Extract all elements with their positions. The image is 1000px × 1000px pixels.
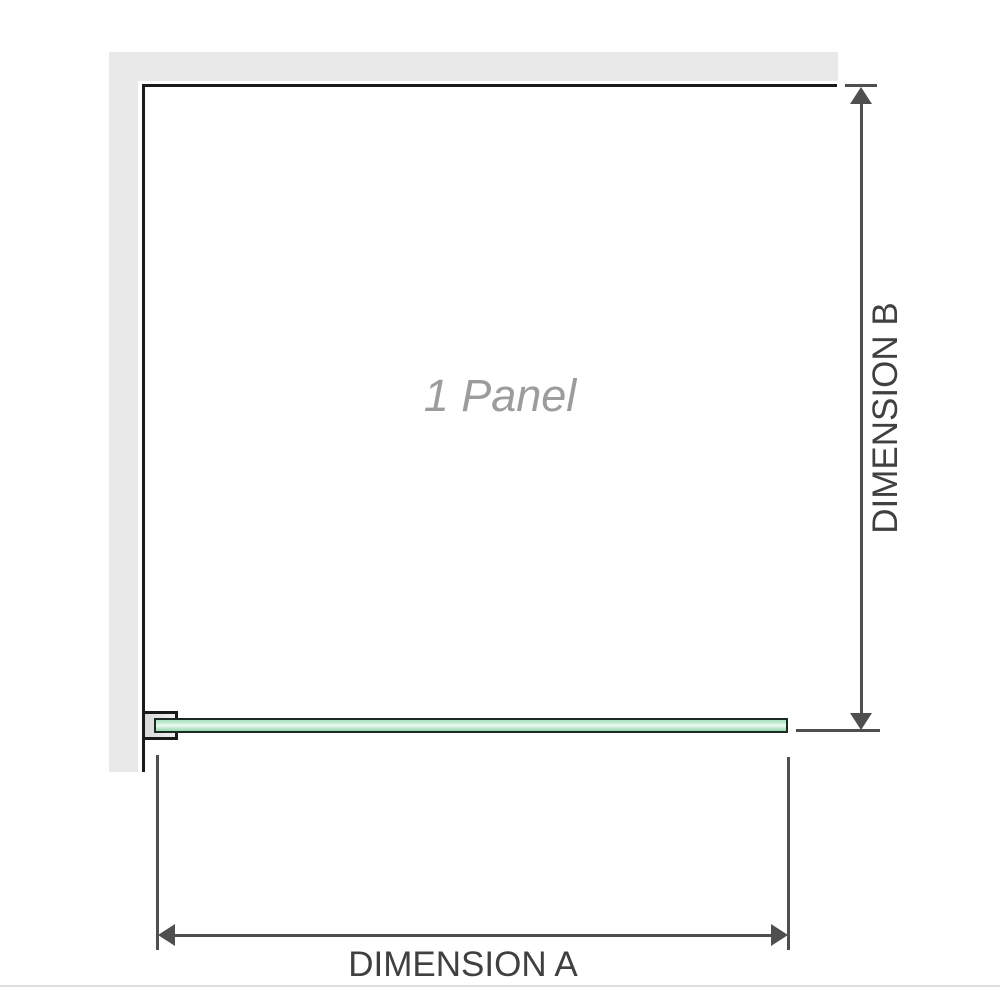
- panel-area-left-edge: [142, 84, 145, 772]
- dimension-b-label: DIMENSION B: [869, 268, 903, 568]
- dimension-a-label: DIMENSION A: [313, 945, 613, 985]
- arrow-down-icon: [850, 713, 872, 730]
- dimension-a-line: [174, 934, 772, 937]
- glass-panel-bar: [154, 718, 788, 733]
- dimension-a-extension-left: [156, 755, 159, 950]
- wall-left: [109, 52, 138, 772]
- arrow-right-icon: [771, 924, 788, 946]
- dimension-b-line: [860, 98, 863, 716]
- dimension-a-extension-right: [787, 757, 790, 950]
- image-bottom-border: [0, 985, 1000, 987]
- wall-top: [109, 52, 838, 81]
- arrow-left-icon: [158, 924, 175, 946]
- panel-count-label: 1 Panel: [350, 370, 650, 422]
- panel-area-top-edge: [142, 84, 837, 87]
- arrow-up-icon: [850, 87, 872, 104]
